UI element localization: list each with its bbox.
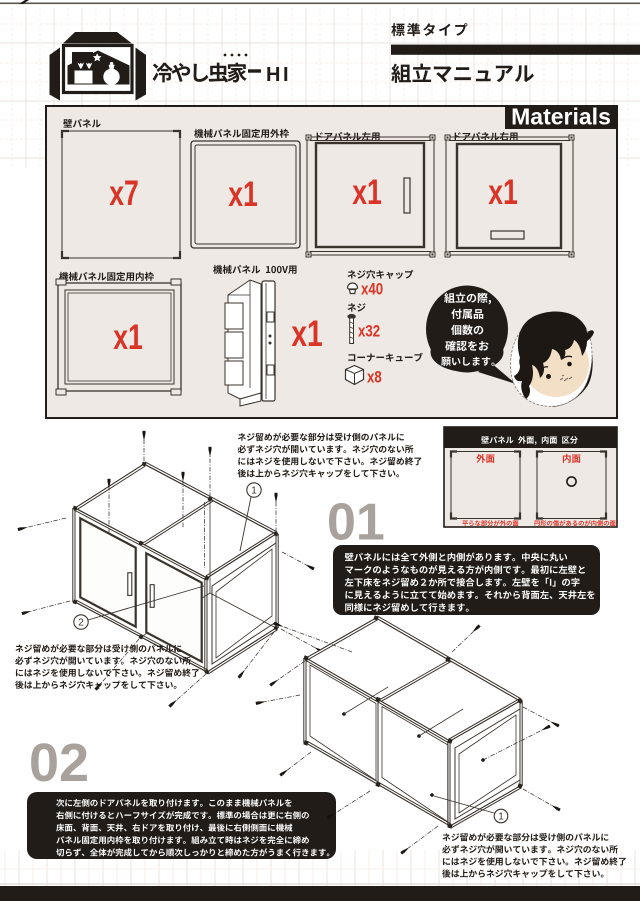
svg-text:x1: x1 bbox=[352, 172, 382, 211]
svg-text:02: 02 bbox=[29, 733, 89, 793]
svg-text:x8: x8 bbox=[367, 368, 382, 387]
svg-text:x1: x1 bbox=[488, 172, 518, 211]
svg-text:2: 2 bbox=[78, 618, 84, 629]
svg-text:x1: x1 bbox=[113, 317, 143, 356]
svg-text:x7: x7 bbox=[109, 173, 139, 212]
svg-text:HI: HI bbox=[266, 64, 291, 86]
svg-text:x32: x32 bbox=[358, 322, 380, 341]
svg-text:01: 01 bbox=[327, 494, 385, 552]
svg-text:x1: x1 bbox=[291, 312, 322, 354]
svg-text:1: 1 bbox=[498, 812, 504, 823]
svg-text:1: 1 bbox=[251, 486, 257, 497]
svg-text:x40: x40 bbox=[361, 280, 383, 299]
svg-text:x1: x1 bbox=[228, 174, 258, 213]
svg-text:Materials: Materials bbox=[511, 104, 611, 130]
